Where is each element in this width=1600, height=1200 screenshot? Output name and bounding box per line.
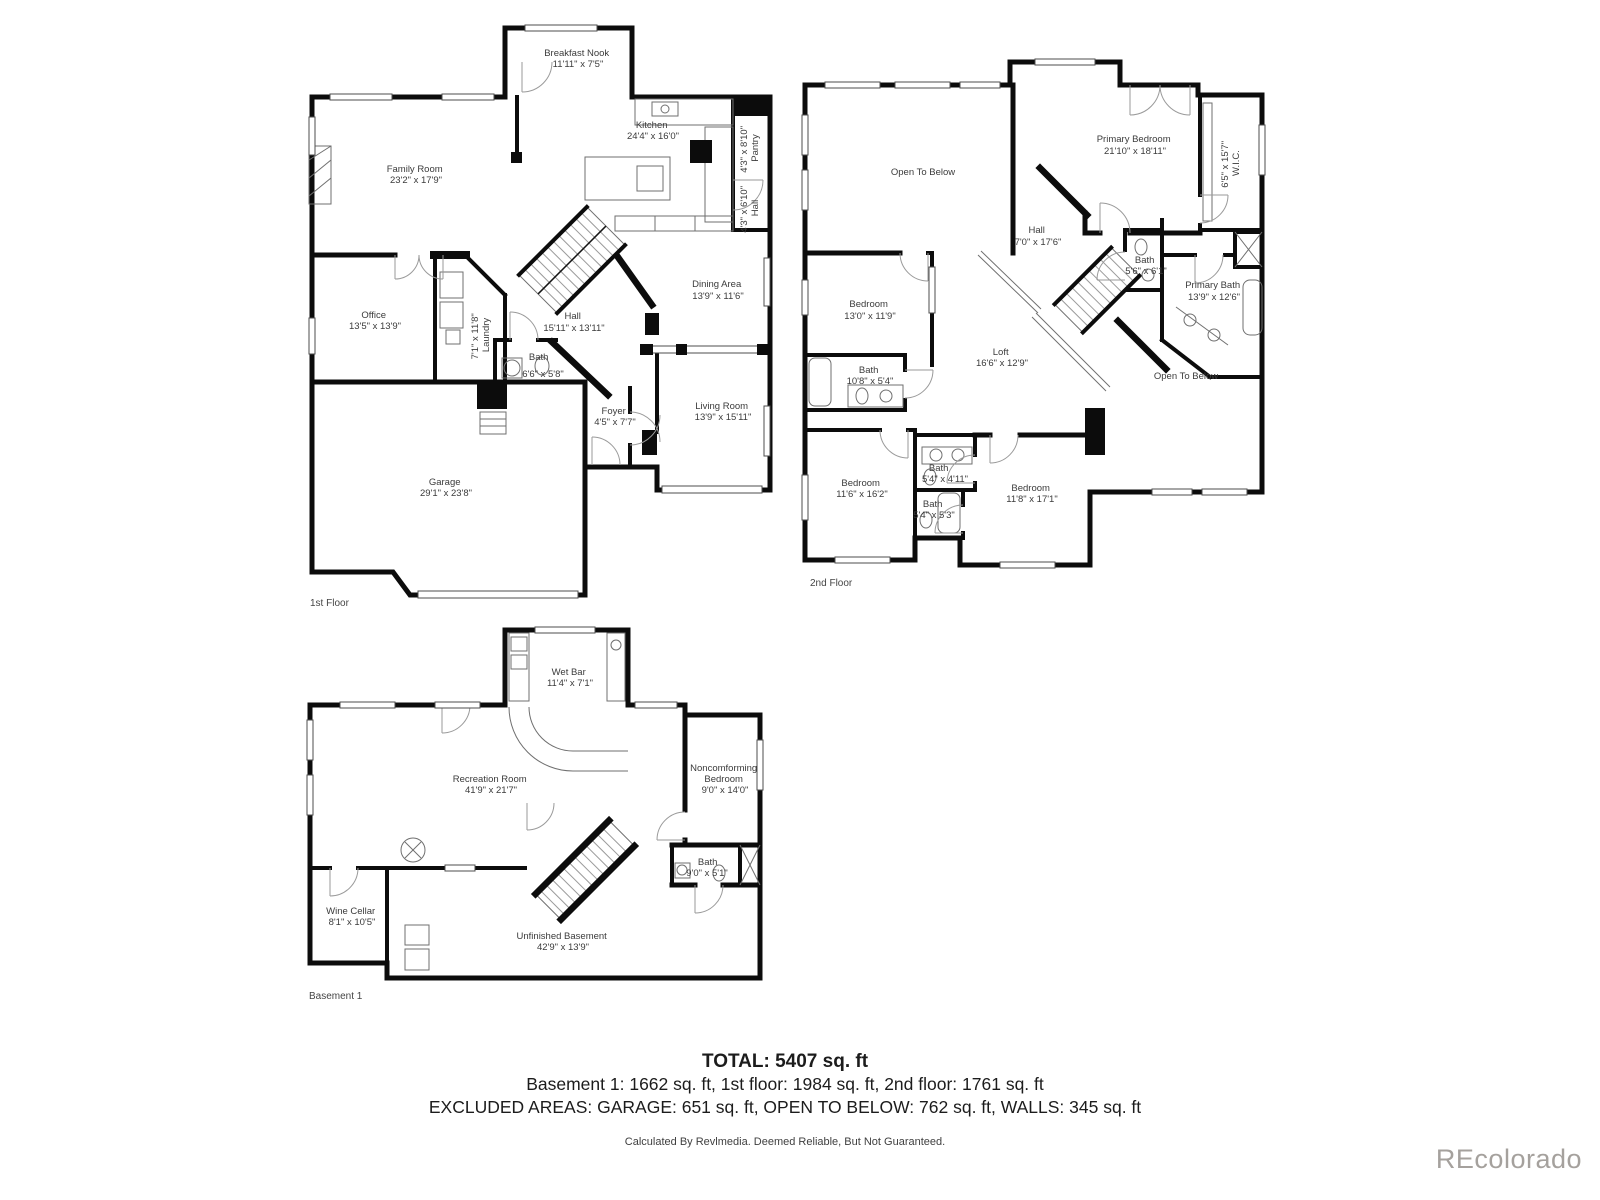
room-label-wet-bar: Wet Bar 11'4" x 7'1" — [547, 667, 593, 689]
excluded-areas-text: EXCLUDED AREAS: GARAGE: 651 sq. ft, OPEN… — [0, 1096, 1570, 1119]
basement-outline — [310, 630, 760, 978]
room-label-wine-cellar: Wine Cellar 8'1" x 10'5" — [326, 906, 378, 928]
wall-block — [733, 95, 770, 116]
room-label-open-to-below-right: Open To Below — [1154, 371, 1218, 382]
floor-plan-second: Open To Below Primary Bedroom 21'10" x 1… — [800, 55, 1270, 600]
floor-plan-first: Breakfast Nook 11'11" x 7'5" Kitchen 24'… — [300, 20, 780, 620]
floor-label-second: 2nd Floor — [810, 578, 853, 589]
floor-areas-text: Basement 1: 1662 sq. ft, 1st floor: 1984… — [0, 1073, 1570, 1096]
room-label-breakfast-nook: Breakfast Nook 11'11" x 7'5" — [544, 48, 612, 70]
area-summary: TOTAL: 5407 sq. ft Basement 1: 1662 sq. … — [0, 1050, 1570, 1118]
room-label-family-room: Family Room 23'2" x 17'9" — [387, 164, 446, 186]
stove-icon — [690, 140, 712, 163]
room-label-laundry: 7'1" x 11'8" Laundry — [470, 311, 492, 360]
room-label-open-to-below-left: Open To Below — [891, 167, 955, 178]
room-label-dining-area: Dining Area 13'9" x 11'6" — [692, 279, 744, 302]
room-label-primary-bath: Primary Bath 13'9" x 12'6" — [1185, 280, 1243, 303]
total-area-text: TOTAL: 5407 sq. ft — [0, 1050, 1570, 1073]
disclaimer-text: Calculated By Revlmedia. Deemed Reliable… — [0, 1136, 1570, 1148]
floor-plan-basement: Wet Bar 11'4" x 7'1" Recreation Room 41'… — [295, 625, 770, 1010]
room-label-primary-bedroom: Primary Bedroom 21'10" x 18'11" — [1097, 134, 1174, 157]
floor-label-first: 1st Floor — [310, 598, 350, 609]
floorplan-sheet: Breakfast Nook 11'11" x 7'5" Kitchen 24'… — [0, 0, 1600, 1200]
recolorado-watermark: REcolorado — [1436, 1144, 1582, 1175]
room-label-bedroom-left: Bedroom 13'0" x 11'9" — [844, 299, 895, 322]
floor-label-basement: Basement 1 — [309, 991, 363, 1002]
room-label-living-room: Living Room 13'9" x 15'11" — [695, 401, 752, 423]
room-label-bedroom-sw: Bedroom 11'6" x 16'2" — [836, 478, 887, 500]
room-label-bedroom-se: Bedroom 11'8" x 17'1" — [1006, 483, 1057, 505]
